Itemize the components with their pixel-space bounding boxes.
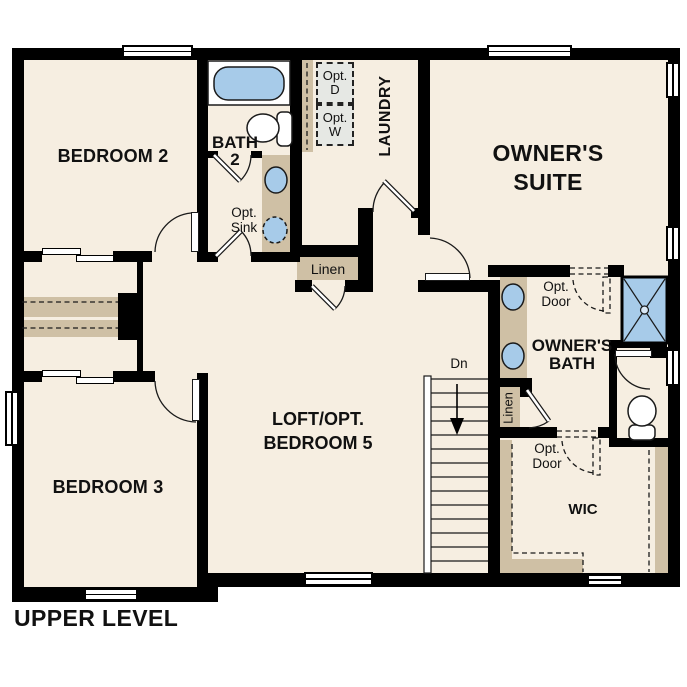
owners-suite-label: OWNER'S SUITE xyxy=(458,139,638,197)
window xyxy=(487,45,572,58)
window-pane xyxy=(589,579,621,581)
wic-label: WIC xyxy=(563,501,603,518)
laundry-label: LAUNDRY xyxy=(377,75,395,156)
wall xyxy=(12,251,42,262)
window xyxy=(122,45,193,58)
optional-washer-box: Opt. W xyxy=(316,104,354,146)
opt-washer-label: Opt. xyxy=(318,111,352,125)
window xyxy=(666,349,680,386)
closet-shelf xyxy=(20,320,120,337)
door-leaf-owners-suite xyxy=(425,273,470,281)
window xyxy=(84,588,138,601)
plan-title: UPPER LEVEL xyxy=(14,605,214,632)
bypass-door-panel xyxy=(76,255,114,262)
wall xyxy=(12,48,24,602)
wic-shelf xyxy=(655,447,668,573)
opt-sink-label: Opt. Sink xyxy=(218,206,270,235)
wall xyxy=(12,371,42,382)
opt-dryer-label: D xyxy=(318,83,352,97)
wall xyxy=(295,280,312,292)
bath2-vanity xyxy=(262,155,290,255)
window xyxy=(304,572,373,586)
wall xyxy=(12,48,680,60)
wall xyxy=(520,387,532,397)
wall xyxy=(205,252,218,262)
window xyxy=(5,391,19,446)
wall xyxy=(290,60,302,257)
closet-shelf xyxy=(20,297,120,317)
bedroom3-label: BEDROOM 3 xyxy=(23,477,193,498)
window-pane xyxy=(672,351,674,384)
door-leaf-bedroom2 xyxy=(191,212,199,252)
window-pane xyxy=(11,393,13,444)
wall xyxy=(608,265,624,277)
bath2-label: BATH 2 xyxy=(203,134,267,168)
wic-shelf xyxy=(500,559,583,573)
wall xyxy=(488,427,557,438)
window xyxy=(587,574,623,586)
opt-door-label-bath: Opt. Door xyxy=(530,280,582,309)
window-pane xyxy=(489,51,570,53)
loft-label: LOFT/OPT. BEDROOM 5 xyxy=(218,407,418,455)
owners-bath-label: OWNER'S BATH xyxy=(510,337,634,372)
laundry-counter xyxy=(302,60,313,152)
wall xyxy=(668,48,680,587)
window-pane xyxy=(672,228,674,259)
wall xyxy=(345,280,373,292)
window-pane xyxy=(306,578,371,580)
bypass-door-panel xyxy=(42,370,81,377)
window xyxy=(666,62,680,98)
wall xyxy=(609,438,675,447)
window xyxy=(666,226,680,261)
wic-shelf xyxy=(500,440,512,573)
wall xyxy=(488,378,532,387)
window-pane xyxy=(86,594,136,596)
bypass-door-panel xyxy=(76,377,114,384)
wall xyxy=(118,293,143,340)
wall xyxy=(113,371,155,382)
wall xyxy=(113,251,152,262)
window-pane xyxy=(124,51,191,53)
stairs-dn-label: Dn xyxy=(443,356,475,371)
bedroom2-label: BEDROOM 2 xyxy=(28,146,198,167)
opt-dryer-label: Opt. xyxy=(318,69,352,83)
owners-bath-linen-label: Linen xyxy=(501,392,516,424)
opt-door-label-wic: Opt. Door xyxy=(521,442,573,471)
hall-linen-label: Linen xyxy=(297,261,359,277)
opt-washer-label: W xyxy=(318,125,352,139)
floor-plan: Opt. D Opt. W xyxy=(0,0,687,687)
bypass-door-panel xyxy=(42,248,81,255)
wall xyxy=(418,60,430,235)
door-leaf-bedroom3 xyxy=(192,379,200,421)
optional-dryer-box: Opt. D xyxy=(316,62,354,104)
window-pane xyxy=(672,64,674,96)
wall xyxy=(488,265,570,277)
wall xyxy=(418,280,500,292)
